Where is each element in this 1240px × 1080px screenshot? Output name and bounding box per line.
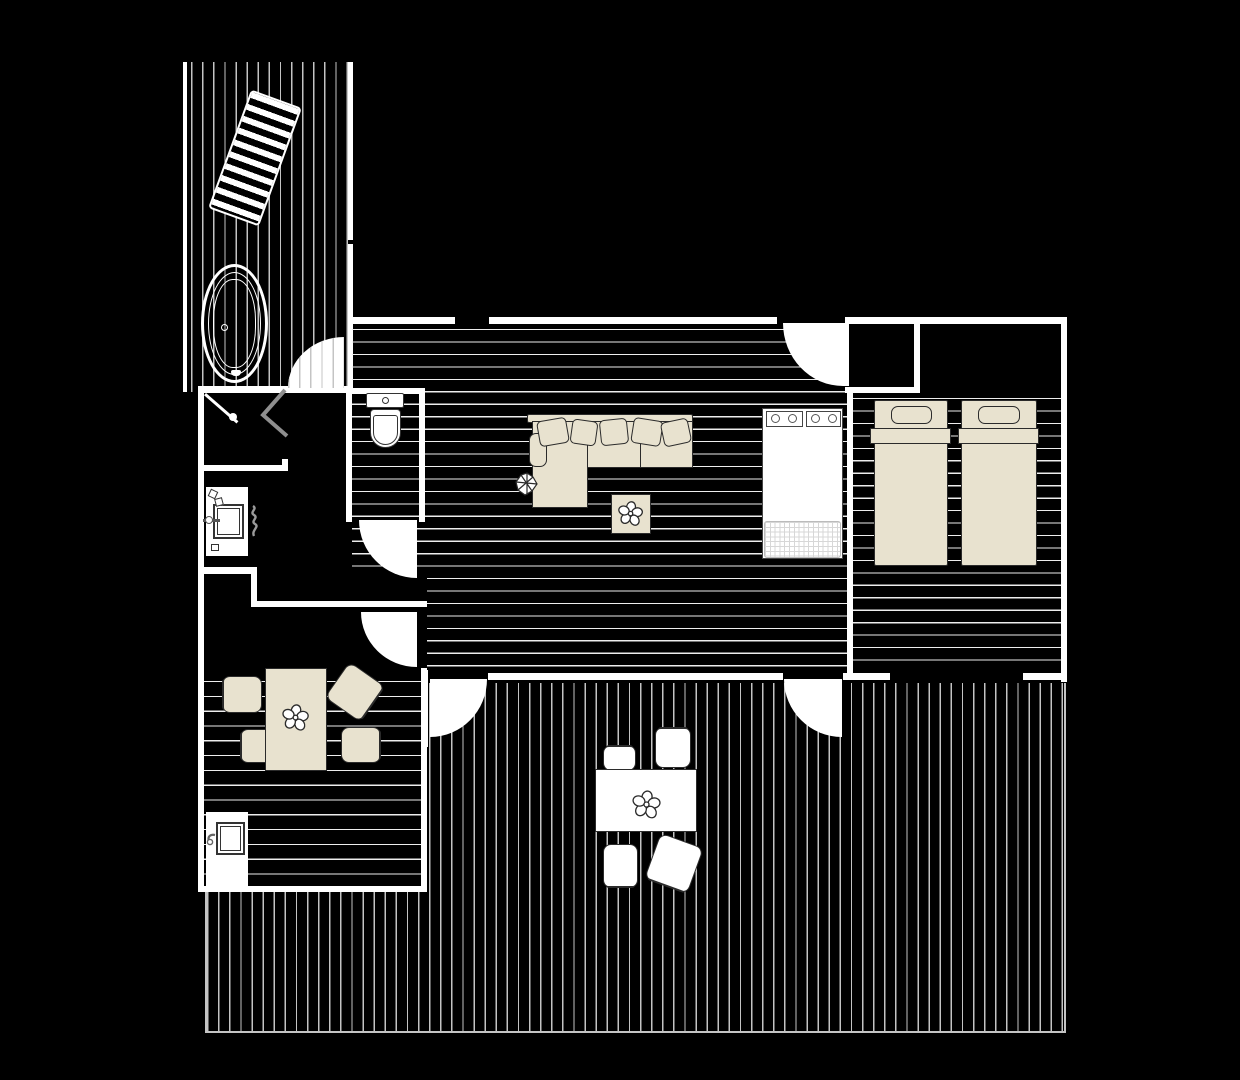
shower-screen-icon (260, 388, 292, 438)
vanity-faucet-knob (205, 516, 213, 524)
sofa-cushion (630, 417, 664, 447)
sofa-cushion (569, 418, 598, 446)
faucet-icon (206, 826, 222, 846)
shower-wall-stub (282, 459, 288, 471)
west-wall (198, 386, 204, 892)
outdoor-chair (603, 745, 636, 771)
outdoor-chair (603, 844, 638, 888)
dining-chair (222, 676, 262, 713)
plant-icon (513, 471, 541, 499)
south-wall-c (1023, 673, 1067, 680)
shower-bottom-wall (203, 465, 288, 471)
bedroom-partition-wall (847, 387, 853, 679)
towel-icon (247, 505, 261, 537)
bedroom-door-leaf (843, 323, 849, 386)
sink-basin-inner (220, 826, 241, 851)
bathtub-drain (221, 324, 228, 331)
bathtub (201, 264, 268, 383)
north-wall-a (348, 317, 455, 324)
floor-plan-canvas (0, 0, 1240, 1080)
hall-south-wall (251, 601, 427, 607)
kitchen-mat (764, 521, 841, 558)
bed-blanket-edge (870, 428, 951, 444)
burner (771, 414, 780, 423)
toilet-bowl (370, 409, 401, 448)
south-wall-a (488, 673, 783, 680)
east-wall (1061, 317, 1067, 682)
bathtub-basin (213, 279, 256, 368)
outdoor-chair (655, 727, 691, 768)
upper-deck-left-edge (183, 62, 187, 392)
wc-right-wall (419, 388, 425, 522)
shower-head (229, 413, 237, 421)
flower-icon (281, 703, 311, 733)
upper-deck-right-edge-upper (348, 62, 353, 240)
bed (961, 400, 1037, 566)
bed-pillow (978, 406, 1020, 424)
burner (811, 414, 820, 423)
north-wall-bedroom (845, 317, 1067, 324)
bed-pillow (891, 406, 932, 424)
closet-right-wall (914, 320, 920, 393)
dining-chair (341, 727, 381, 763)
sofa-cushion (536, 417, 570, 448)
dining-to-deck-door-leaf (422, 670, 428, 747)
toilet-bowl-inner (373, 415, 398, 445)
drain-item (211, 544, 219, 551)
bathtub-faucet (231, 370, 241, 376)
vanity-basin-inner (217, 508, 240, 535)
flower-icon (617, 500, 645, 528)
closet-bottom-wall (845, 387, 920, 393)
burner (828, 414, 837, 423)
bed-blanket-edge (958, 428, 1039, 444)
burner (788, 414, 797, 423)
flower-icon (631, 789, 663, 821)
bathroom-bottom-wall (198, 567, 257, 574)
wc-left-wall (346, 388, 352, 522)
bed (874, 400, 948, 566)
sofa-cushion (599, 418, 630, 447)
toilet-button (382, 397, 389, 404)
north-wall-b (489, 317, 777, 324)
